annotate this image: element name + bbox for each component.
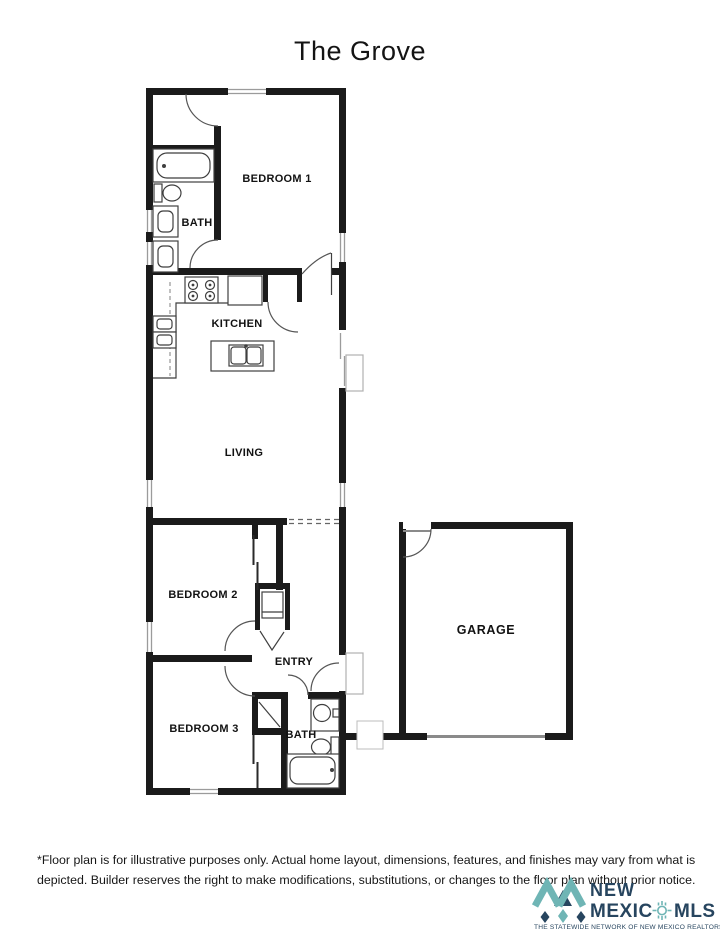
fridge-icon — [228, 276, 262, 305]
nmmls-logo: NEW MEXIC MLS THE STATEWIDE NETWORK OF N… — [532, 874, 720, 931]
bedroom2-door-arc — [225, 621, 255, 651]
bath1-door-arc — [190, 240, 218, 268]
disclaimer-line1: *Floor plan is for illustrative purposes… — [37, 851, 702, 871]
entry-pad — [346, 653, 363, 694]
mountains-icon — [535, 884, 586, 923]
room-label-entry: ENTRY — [275, 656, 314, 668]
exterior — [346, 355, 399, 749]
stove-icon — [185, 277, 218, 303]
patio-slider — [339, 330, 347, 388]
logo-word-new: NEW — [590, 880, 635, 900]
water-heater-icon — [262, 592, 283, 618]
room-label-bedroom3: BEDROOM 3 — [169, 723, 238, 735]
room-label-bath1: BATH — [182, 217, 213, 229]
garage-mandoor-arc — [403, 529, 431, 557]
bedroom3-door-arc — [225, 666, 255, 696]
room-label-bedroom2: BEDROOM 2 — [168, 589, 237, 601]
closet-bypass-doors — [254, 535, 258, 788]
kitchen-island-icon — [211, 341, 274, 371]
logo-word-mls: MLS — [674, 901, 716, 922]
front-door-opening — [339, 655, 347, 691]
zia-symbol-icon — [653, 901, 672, 920]
bathtub-icon — [287, 754, 339, 788]
flyer-page: The Grove — [0, 0, 720, 931]
room-label-bath2: BATH — [286, 729, 317, 741]
sink-icon — [153, 206, 178, 237]
door-swings — [186, 94, 339, 727]
sink-icon — [153, 241, 178, 272]
logo-word-mexic: MEXIC — [590, 901, 653, 922]
bath2-door-arc — [288, 675, 308, 695]
pantry-door-arc — [268, 302, 298, 332]
room-label-kitchen: KITCHEN — [212, 318, 263, 330]
bathtub-icon — [153, 149, 214, 182]
floor-plan: BEDROOM 1 BATH KITCHEN LIVING BEDROOM 2 … — [0, 0, 720, 850]
room-label-garage: GARAGE — [457, 623, 515, 637]
corner-sink-icon — [153, 316, 176, 348]
logo-tagline: THE STATEWIDE NETWORK OF NEW MEXICO REAL… — [534, 923, 720, 931]
utility-door — [260, 631, 284, 650]
gate-post — [357, 721, 383, 749]
sink-icon — [311, 699, 339, 731]
linen-door — [259, 702, 280, 727]
toilet-icon — [154, 184, 181, 202]
room-label-bedroom1: BEDROOM 1 — [242, 173, 311, 185]
closet-door-arc — [186, 94, 218, 126]
patio-pad — [346, 355, 363, 391]
bedroom1-door-arc — [302, 253, 331, 274]
room-label-living: LIVING — [225, 447, 263, 459]
front-door-arc — [311, 663, 339, 691]
